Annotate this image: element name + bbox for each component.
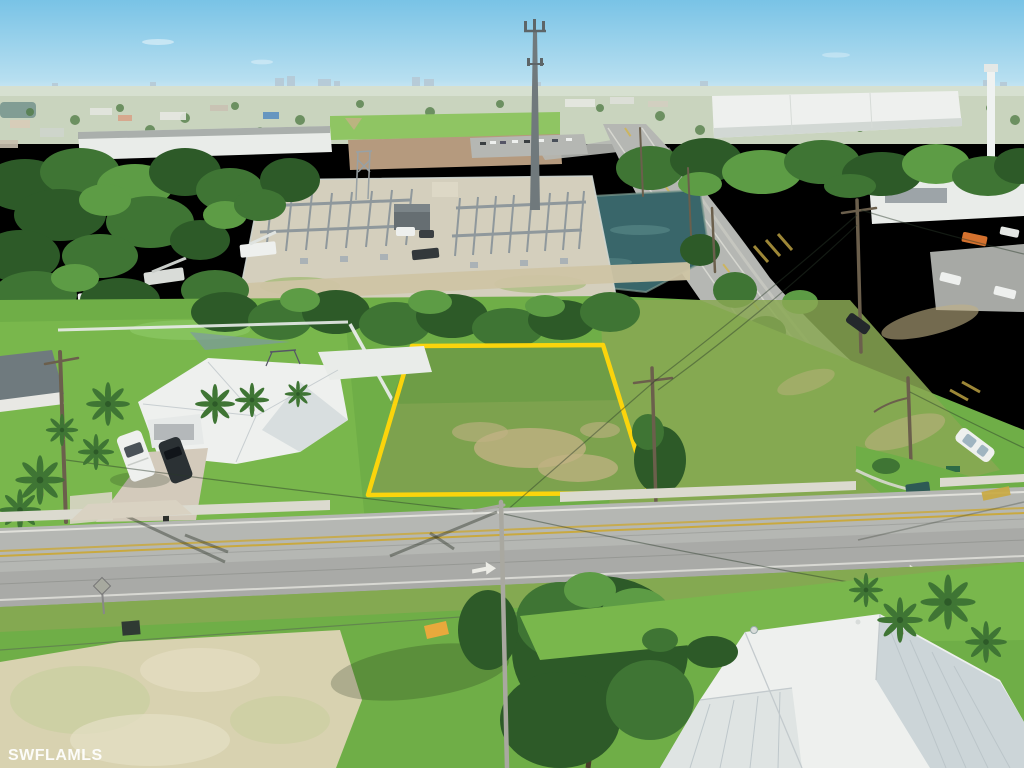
trailer (999, 226, 1019, 238)
cloud (251, 60, 273, 65)
aerial-photo-canvas: SWFLAMLS (0, 0, 1024, 768)
dark-car (419, 230, 434, 238)
right-parking (930, 226, 1024, 312)
roof-vent (751, 627, 758, 634)
watermark: SWFLAMLS (8, 747, 103, 764)
cloud (822, 52, 850, 57)
white-suv (396, 227, 415, 236)
control-building (432, 182, 458, 197)
cloud (142, 39, 174, 45)
aerial-photo: SWFLAMLS (0, 0, 1024, 768)
bucket-truck (143, 258, 186, 286)
roof-vent (856, 620, 861, 625)
trash-bin (121, 620, 140, 636)
